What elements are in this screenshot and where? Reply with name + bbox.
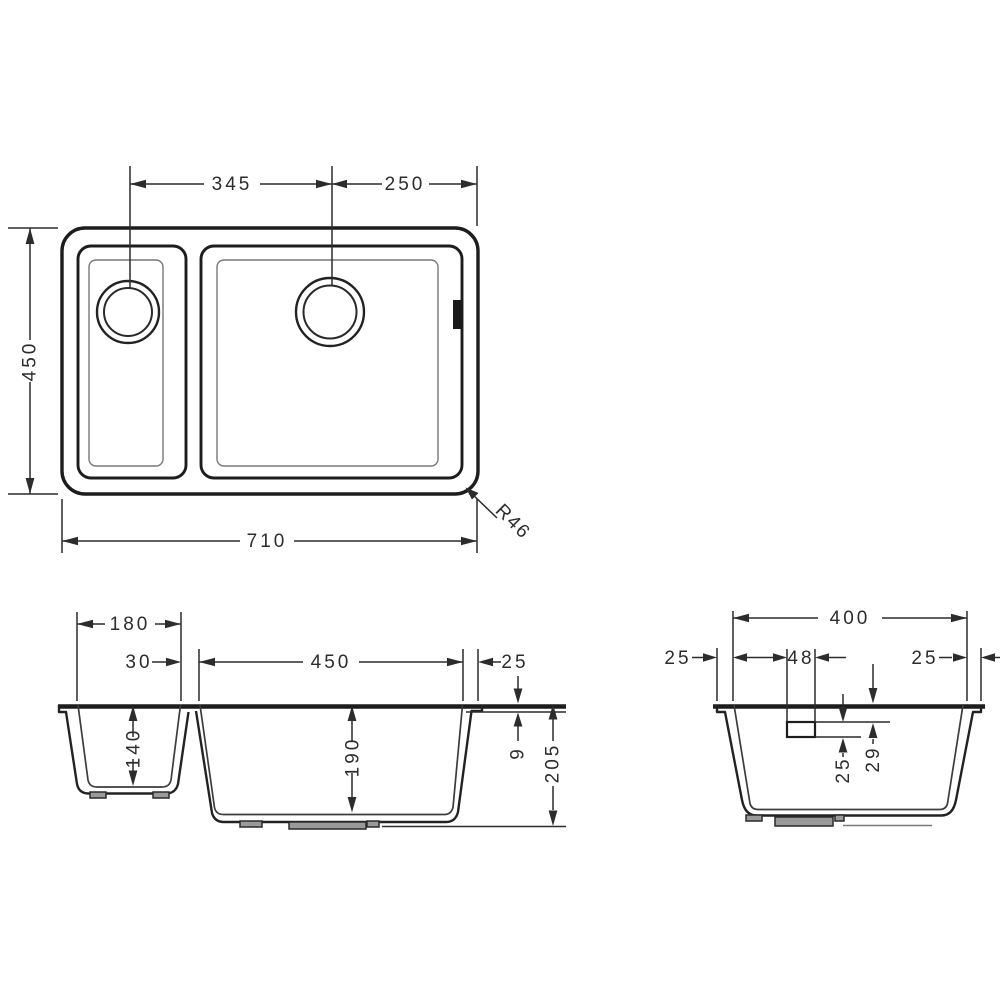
arrowhead [166, 658, 181, 667]
dim-label: 205 [543, 743, 564, 784]
side-dimensions: 400 25 48 25 29 25 [664, 608, 1000, 784]
dim-label: 180 [110, 614, 151, 635]
dim-label: 450 [311, 652, 352, 673]
sink-technical-drawing: 345 250 450 710 R46 [0, 0, 1000, 1000]
foot-pad [367, 821, 379, 827]
foot-pad [153, 792, 169, 798]
dim-label: 29 [863, 745, 884, 772]
dim-label: 25 [833, 756, 854, 783]
dimension-line [152, 649, 199, 701]
foot-pad [835, 815, 844, 821]
plan-view [62, 228, 478, 494]
dim-label: 250 [385, 174, 426, 195]
arrowhead [703, 653, 717, 662]
dim-divider-width: 30 [125, 649, 199, 701]
dimension-line [815, 664, 890, 744]
dim-label: 30 [125, 652, 152, 673]
foot-pad [775, 817, 833, 826]
foot-pad [90, 792, 106, 798]
dim-back-margin: 25 [911, 648, 1000, 701]
overflow-mark [453, 300, 462, 329]
arrowhead [869, 688, 878, 738]
dimension-line [382, 708, 566, 827]
dim-drain-to-edge: 250 [332, 166, 477, 226]
dim-label: 345 [212, 174, 253, 195]
foot-pad [746, 815, 762, 821]
foot-pad [289, 822, 366, 829]
dim-main-bowl-width: 450 [199, 649, 463, 701]
dim-overall-depth: 450 [8, 228, 58, 494]
dim-label: 450 [20, 341, 41, 382]
dim-label: R46 [491, 500, 535, 544]
dim-label: 25 [911, 648, 938, 669]
overflow-opening [787, 722, 815, 737]
dim-label: 25 [501, 652, 528, 673]
dim-rim-to-overflow: 29 [815, 664, 890, 773]
arrowhead [953, 653, 995, 662]
dim-label: 9 [508, 746, 529, 760]
dim-overall-width: 710 [62, 499, 477, 553]
dim-main-bowl-depth: 190 [343, 706, 364, 813]
dim-overflow-width: 48 [733, 648, 846, 721]
dim-small-bowl-depth: 140 [124, 706, 145, 787]
arrowhead [478, 658, 493, 667]
foot-pad [240, 821, 262, 827]
dim-overall-height: 205 [382, 704, 566, 827]
dim-corner-radius: R46 [466, 488, 535, 544]
main-bowl-outer-wall [196, 705, 482, 822]
technical-drawing-page: 345 250 450 710 R46 [0, 0, 1000, 1000]
dim-label: 140 [124, 728, 145, 769]
dim-label: 710 [247, 531, 288, 552]
dim-label: 190 [343, 737, 364, 778]
arrowhead [839, 707, 848, 753]
dim-label: 25 [664, 648, 691, 669]
dimension-line [815, 694, 861, 757]
dimension-line [478, 649, 501, 701]
dim-label: 48 [787, 648, 814, 669]
dim-front-margin: 25 [664, 648, 717, 701]
main-bowl-inner-wall [200, 705, 463, 815]
dim-label: 400 [830, 608, 871, 629]
